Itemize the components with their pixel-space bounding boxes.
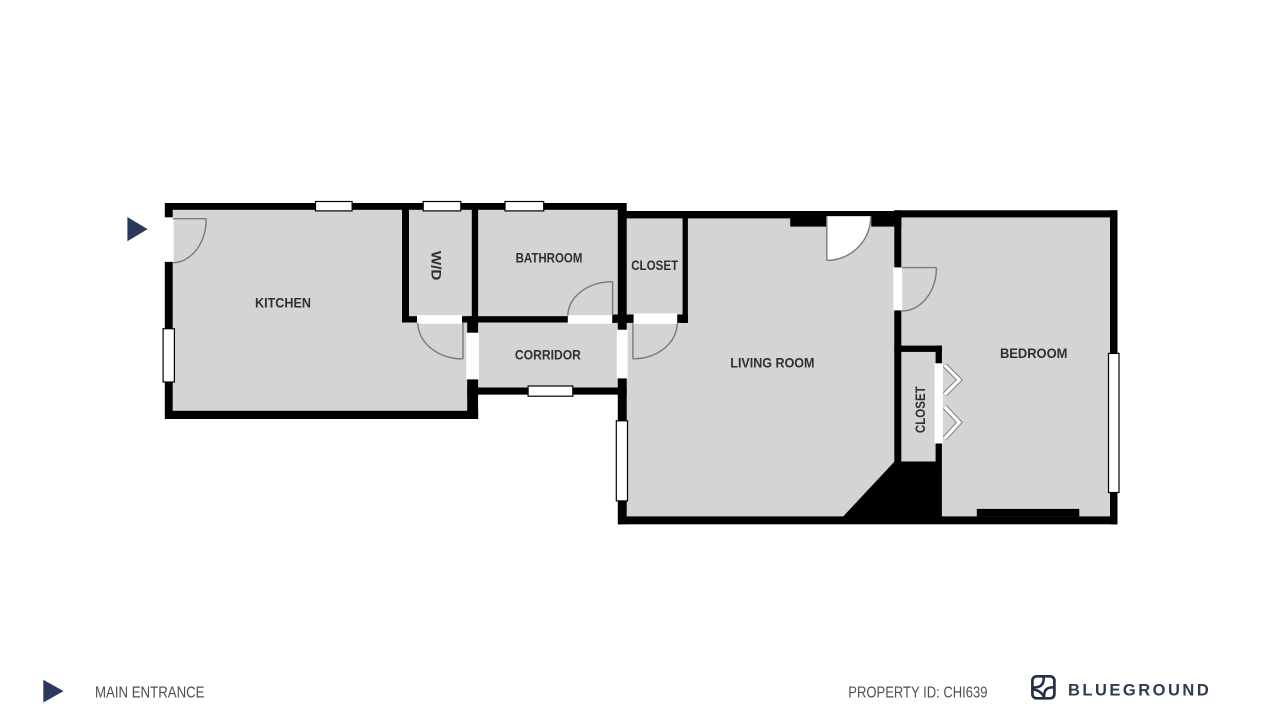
svg-text:CLOSET: CLOSET <box>912 386 928 433</box>
svg-text:BEDROOM: BEDROOM <box>1000 345 1068 361</box>
svg-text:CLOSET: CLOSET <box>631 257 678 273</box>
svg-text:LIVING ROOM: LIVING ROOM <box>730 355 814 371</box>
svg-text:CORRIDOR: CORRIDOR <box>515 347 581 363</box>
svg-text:MAIN ENTRANCE: MAIN ENTRANCE <box>95 685 205 702</box>
svg-text:BLUEGROUND: BLUEGROUND <box>1068 682 1211 700</box>
svg-text:BATHROOM: BATHROOM <box>516 250 583 266</box>
svg-text:W/D: W/D <box>429 251 445 281</box>
svg-text:PROPERTY ID: CHI639: PROPERTY ID: CHI639 <box>848 684 987 701</box>
svg-text:KITCHEN: KITCHEN <box>255 295 311 311</box>
